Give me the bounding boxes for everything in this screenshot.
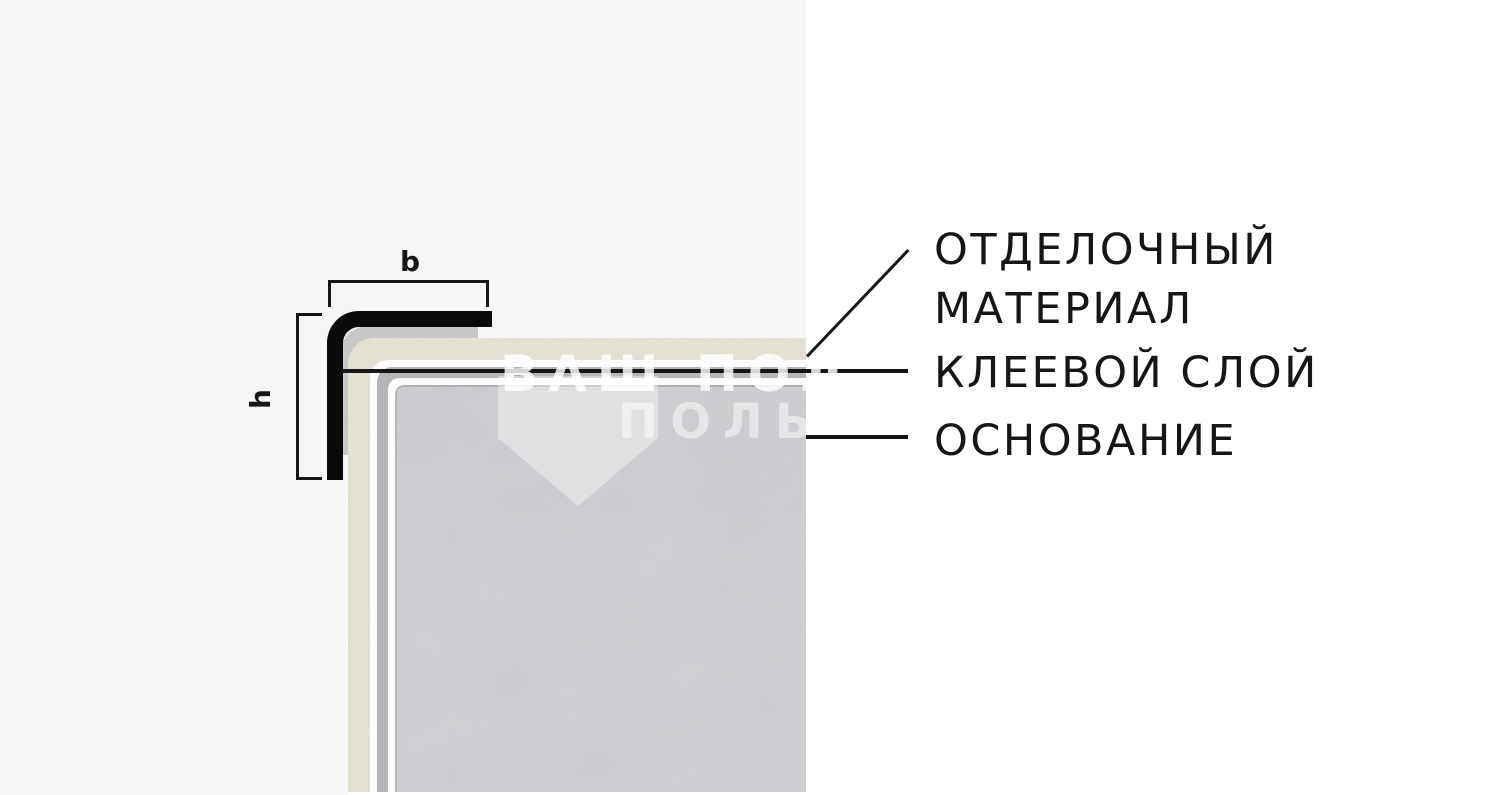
corner-profile-diagram: b h ВАШ ПОЛ ПОЛЬ ОТДЕЛОЧНЫЙ МАТЕРИАЛ КЛЕ… <box>0 0 1500 795</box>
label-finishing-material-line2: МАТЕРИАЛ <box>934 288 1194 331</box>
dimension-label-h: h <box>244 382 278 416</box>
corner-profile <box>327 311 492 480</box>
label-base: ОСНОВАНИЕ <box>934 420 1237 463</box>
label-adhesive-layer: КЛЕЕВОЙ СЛОЙ <box>934 352 1319 395</box>
dimension-label-b: b <box>395 248 425 276</box>
dimension-bracket-height <box>296 313 322 480</box>
watermark-text-line2: ПОЛЬ <box>618 394 823 450</box>
label-finishing-material-line1: ОТДЕЛОЧНЫЙ <box>934 229 1278 272</box>
dimension-bracket-width <box>328 280 489 307</box>
